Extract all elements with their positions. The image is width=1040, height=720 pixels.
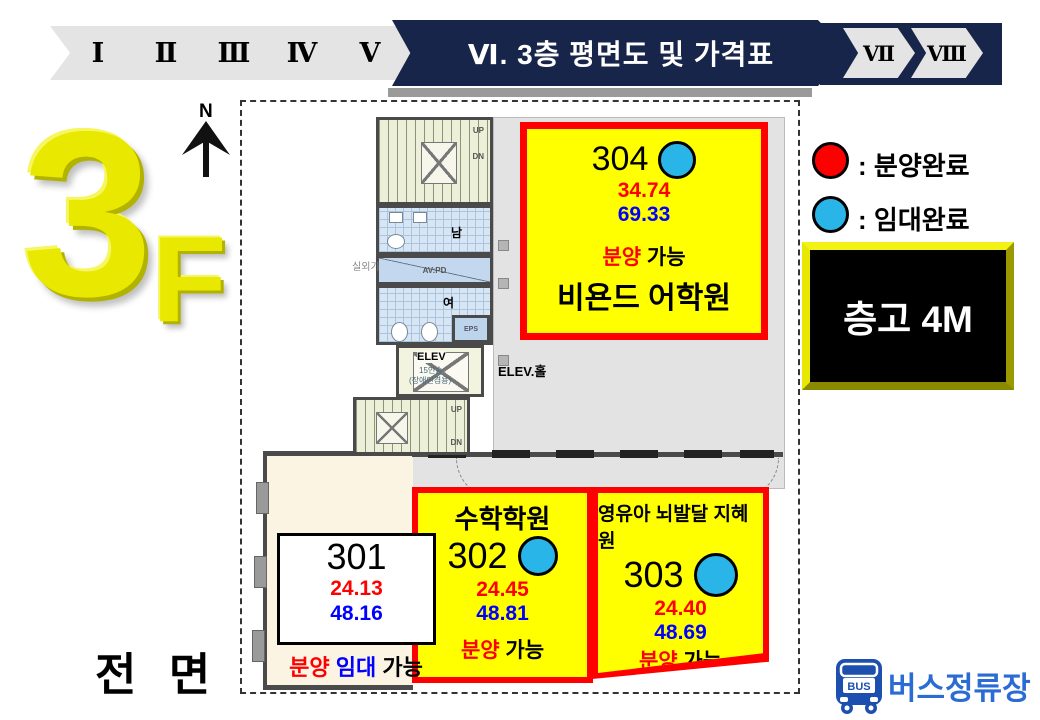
toilet-fixture — [421, 322, 438, 342]
ceiling-height-label: 층고 4M — [843, 289, 973, 343]
window-segment — [556, 450, 594, 458]
elevator-room: ELEV 15인승 (장애인겸용) — [396, 345, 484, 397]
leased-dot-302 — [518, 536, 558, 576]
elevator-label: ELEV — [417, 351, 446, 363]
unit-301-status-ok: 가능 — [382, 655, 422, 680]
legend-sold-label: 분양완료 — [874, 151, 970, 181]
unit-301-area2: 48.16 — [330, 602, 383, 626]
upper-stair-room: UP DN — [376, 117, 493, 205]
mens-toilet: 남 — [376, 205, 493, 255]
unit-304-tenant: 비욘드 어학원 — [557, 273, 731, 317]
unit-301-status-lease: 임대 — [336, 655, 376, 680]
window-segment — [684, 450, 722, 458]
unit-304-box: 304 34.74 69.33 분양 가능 비욘드 어학원 — [520, 122, 768, 340]
unit-303-tenant: 영유아 뇌발달 지혜원 — [598, 499, 763, 553]
tab-step-3-label: Ⅲ — [218, 38, 251, 69]
tab-step-8-label: Ⅷ — [927, 41, 967, 66]
top-wall-bar — [388, 88, 812, 97]
column-marker — [498, 240, 509, 251]
legend-leased-label: 임대완료 — [874, 205, 970, 235]
womens-toilet-label: 여 — [443, 294, 454, 311]
unit-304-status-sale: 분양 — [602, 246, 641, 269]
duct-shaft: AV:PD — [376, 255, 493, 285]
duct-label: AV:PD — [423, 266, 447, 275]
tab-step-7-label: Ⅶ — [863, 41, 895, 66]
toilet-fixture — [387, 234, 405, 249]
legend-leased: : 임대완료 — [858, 200, 970, 237]
legend-leased-sep: : — [858, 205, 867, 235]
unit-304-status-ok: 가능 — [647, 246, 686, 269]
eps-label: EPS — [464, 326, 478, 333]
stair-landing — [421, 142, 457, 184]
unit-303-area1: 24.40 — [654, 597, 707, 621]
stair-up-label: UP — [451, 405, 462, 414]
unit-303-status-sale: 분양 — [639, 650, 678, 673]
bus-icon-badge: BUS — [847, 681, 870, 693]
north-arrow-icon — [180, 119, 232, 177]
leased-dot-303 — [694, 553, 738, 597]
column-marker — [498, 355, 509, 366]
floor-mark-f: F — [152, 218, 227, 340]
floor-mark-3: 3 — [22, 96, 153, 331]
tab-step-4-label: Ⅳ — [287, 38, 318, 69]
unit-302-area2: 48.81 — [476, 602, 529, 626]
stair-landing — [376, 412, 408, 444]
window-segment — [492, 450, 530, 458]
tab-step-2-label: Ⅱ — [155, 38, 178, 69]
ceiling-height-box: 층고 4M — [802, 242, 1014, 390]
unit-303-box: 영유아 뇌발달 지혜원 303 24.40 48.69 분양 가능 — [592, 487, 769, 679]
tab-step-1-label: Ⅰ — [92, 38, 105, 69]
mens-toilet-label: 남 — [451, 224, 462, 241]
sink-fixture — [389, 212, 403, 223]
unit-303-number: 303 — [623, 556, 683, 594]
unit-302-tenant: 수학학원 — [455, 499, 551, 536]
unit-303-inner: 영유아 뇌발달 지혜원 303 24.40 48.69 분양 가능 — [598, 493, 763, 673]
bus-icon: BUS — [833, 657, 885, 715]
legend-sold-sep: : — [858, 151, 867, 181]
window-segment — [740, 450, 774, 458]
unit-301-status-sale: 분양 — [289, 655, 329, 680]
leased-dot-304 — [658, 141, 696, 179]
stair-up-label: UP — [473, 126, 484, 135]
front-label: 전 면 — [95, 638, 220, 703]
unit-301-status: 분양 임대 가능 — [266, 650, 446, 682]
window-block — [254, 556, 267, 588]
stair-dn-label: DN — [450, 438, 462, 447]
page-title: Ⅵ. 3층 평면도 및 가격표 — [468, 33, 774, 73]
eps-shaft: EPS — [452, 315, 490, 343]
tab-step-6-active[interactable]: Ⅵ. 3층 평면도 및 가격표 — [392, 20, 850, 86]
tab-step-5-label: Ⅴ — [360, 38, 381, 69]
legend-sold-dot — [812, 142, 849, 179]
lower-stair-room: UP DN — [353, 397, 470, 455]
unit-304-number: 304 — [592, 142, 649, 178]
slide: Ⅰ Ⅱ Ⅲ Ⅳ Ⅴ Ⅵ. 3층 평면도 및 가격표 Ⅶ Ⅷ 3 F N UP D… — [0, 0, 1040, 720]
unit-303-area2: 48.69 — [654, 621, 707, 645]
stair-dn-label: DN — [472, 152, 484, 161]
unit-301-box: 301 24.13 48.16 — [277, 533, 436, 645]
column-marker — [498, 278, 509, 289]
window-block — [252, 630, 265, 662]
legend-sold: : 분양완료 — [858, 146, 970, 183]
outdoor-unit-label: 실외기 — [352, 258, 380, 273]
unit-302-status-ok: 가능 — [505, 639, 544, 662]
elevator-note: (장애인겸용) — [409, 375, 451, 386]
unit-304-area2: 69.33 — [618, 203, 671, 227]
unit-301-number: 301 — [326, 536, 386, 577]
unit-302-area1: 24.45 — [476, 578, 529, 602]
toilet-fixture — [391, 322, 408, 342]
sink-fixture — [413, 212, 427, 223]
bus-stop-label: 버스정류장 — [888, 663, 1031, 708]
unit-301-area1: 24.13 — [330, 577, 383, 601]
unit-302-number: 302 — [447, 537, 507, 575]
unit-304-area1: 34.74 — [618, 179, 671, 203]
legend-leased-dot — [812, 196, 849, 233]
window-segment — [620, 450, 658, 458]
window-block — [256, 482, 269, 514]
unit-302-status-sale: 분양 — [461, 639, 500, 662]
